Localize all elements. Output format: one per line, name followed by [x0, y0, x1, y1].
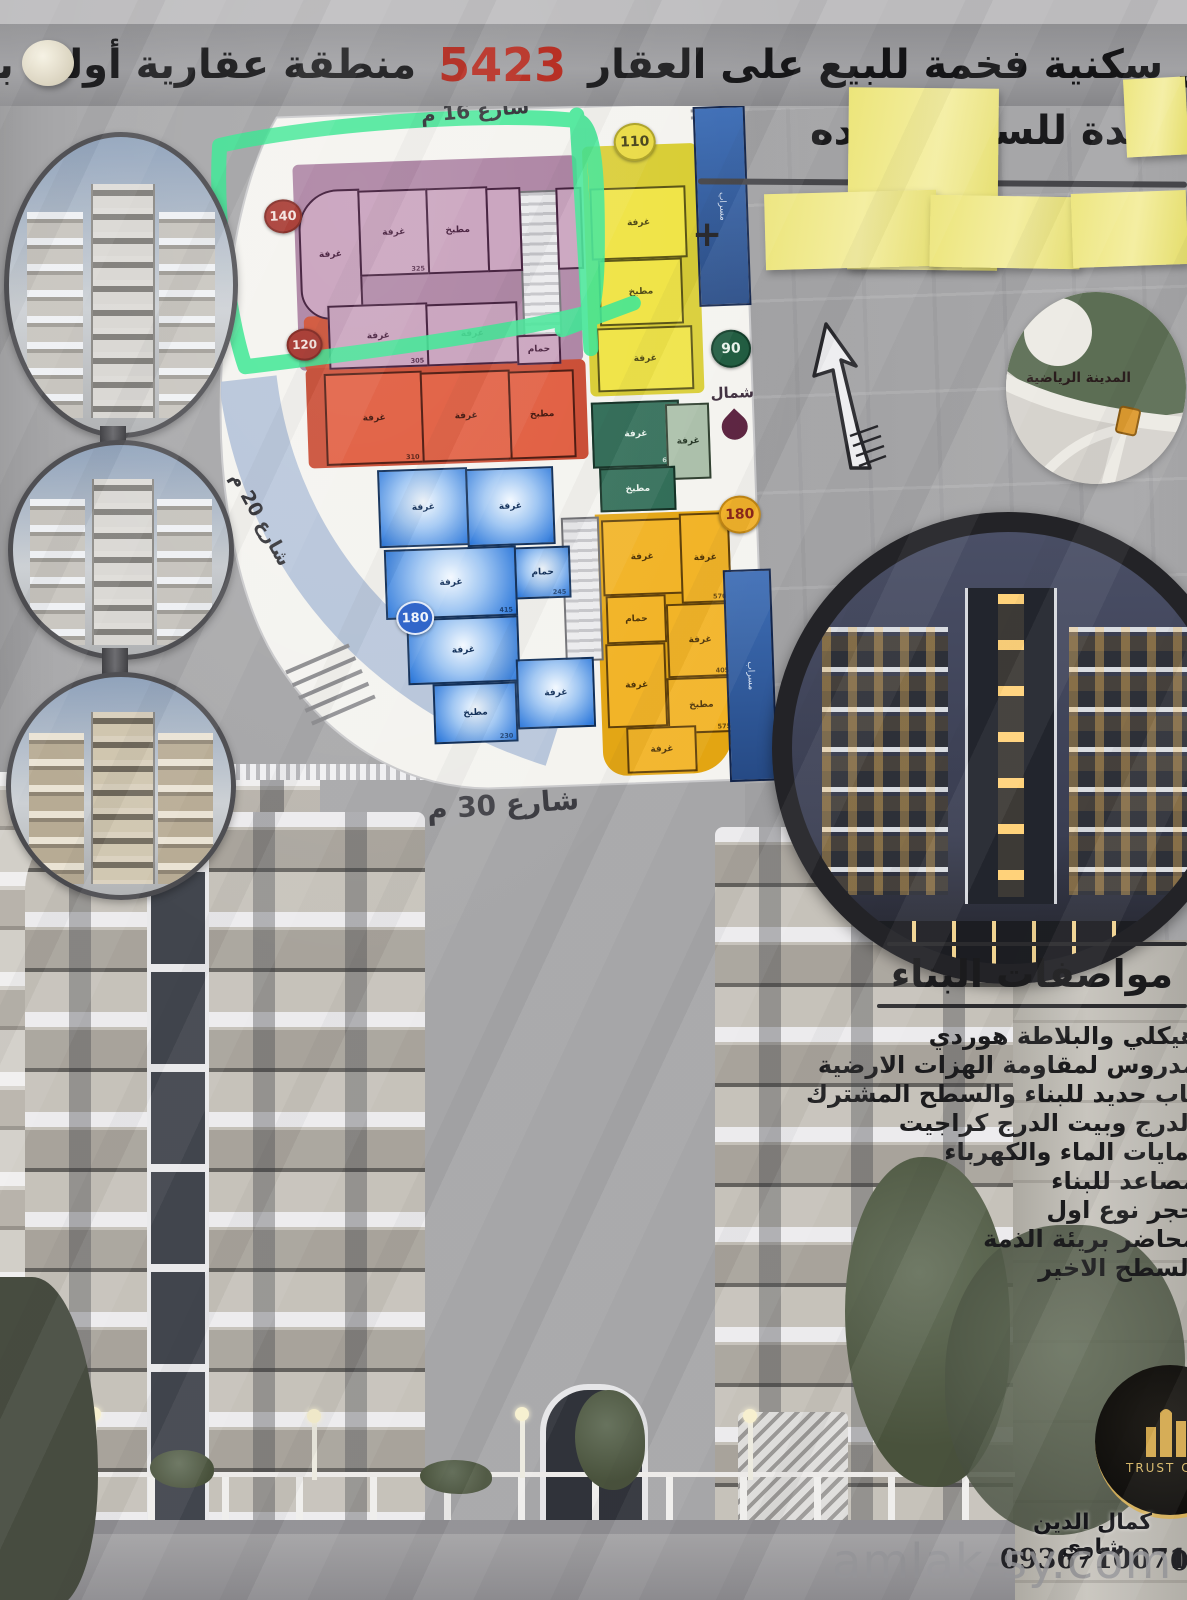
room-label: مطبخ	[689, 700, 714, 711]
building-render-circle-2	[8, 440, 234, 660]
spec-item: محاضر بريئة الذمة	[857, 1225, 1187, 1254]
room-label: مطبخ	[530, 409, 555, 420]
spec-item: امايات الماء والكهرباء	[857, 1138, 1187, 1167]
wall-strip	[0, 0, 1187, 24]
badge-value: 180	[401, 610, 429, 626]
room-label: غرفة	[319, 249, 342, 260]
room-label: غرفة	[634, 353, 657, 364]
room-label: غرفة	[461, 328, 484, 339]
building-render-circle-1	[4, 132, 238, 438]
plan-room: مطبخ230	[433, 681, 519, 744]
room-label: غرفة	[624, 429, 647, 440]
room-label: حمام	[625, 614, 648, 625]
banner-title-right: شقق سكنية فخمة للبيع على العقار	[588, 42, 1187, 88]
room-label: غرفة	[362, 413, 385, 424]
plan-room: مطبخ	[598, 257, 684, 326]
plan-room: غرفة	[465, 466, 556, 547]
poster-photo: شقق سكنية فخمة للبيع على العقار 5423 منط…	[0, 0, 1187, 1600]
room-label: غرفة	[499, 501, 522, 512]
room-area: 245	[553, 588, 567, 596]
night-wing-left	[822, 627, 947, 895]
room-area: 310	[406, 453, 420, 461]
lamp-post	[520, 1420, 525, 1478]
specs-title: مواصفات البناء	[857, 946, 1187, 1004]
spec-item: مصاعد للبناء	[857, 1167, 1187, 1196]
plan-room: غرفة	[605, 642, 668, 728]
specs-panel: مواصفات البناء هيكلي والبلاطة هوردي مدرو…	[857, 942, 1187, 1283]
mini-building-1	[27, 184, 215, 418]
plan-room: غرفة310	[324, 371, 425, 466]
room-label: غرفة	[688, 635, 711, 646]
plan-room: غرفة	[420, 370, 513, 463]
room-label: غرفة	[412, 502, 435, 513]
mini-building-3	[29, 712, 214, 884]
plan-room: مطبخ	[508, 369, 577, 459]
mini-wing-left	[27, 212, 83, 418]
spec-item: باب حديد للبناء والسطح المشترك	[857, 1080, 1187, 1109]
sticky-note	[929, 195, 1080, 270]
plan-room: غرفة	[516, 657, 596, 730]
mini-wing-right	[159, 212, 215, 418]
room-label: غرفة	[544, 688, 567, 699]
pin-blob	[22, 40, 74, 86]
light-shaft-strip: مسراب	[723, 569, 778, 783]
property-number: 5423	[438, 38, 566, 92]
plan-room: غرفة	[596, 325, 694, 392]
badge-value: 140	[269, 208, 297, 224]
plan-room: مطبخ	[425, 186, 490, 274]
plan-room: غرفة	[589, 185, 687, 260]
covered-phone-fragment: +	[692, 214, 722, 255]
lamp-post	[748, 1422, 753, 1480]
room-label: غرفة	[650, 744, 673, 755]
night-wing-right	[1069, 627, 1187, 895]
plan-room: مطبخ	[599, 466, 676, 513]
fence	[0, 1472, 1015, 1523]
spec-item: السطح الاخير	[857, 1254, 1187, 1283]
room-label: حمام	[527, 344, 550, 355]
plan-room: غرفة	[297, 189, 363, 321]
room-label: غرفة	[676, 436, 699, 447]
mini-core	[91, 184, 155, 418]
watermark: amlak-sy.com	[832, 1534, 1172, 1590]
logo-building-icon	[1140, 1405, 1187, 1457]
mini-core	[92, 479, 154, 645]
mini-core	[91, 712, 154, 884]
room-label: مطبخ	[629, 286, 654, 297]
circle-connector	[102, 648, 128, 674]
map-svg	[1006, 292, 1186, 484]
mini-wing-right	[158, 733, 213, 885]
sticky-note	[1123, 76, 1187, 157]
shaft-label: مسراب	[745, 661, 756, 690]
plan-room: غرفة	[377, 467, 470, 548]
lamp-post	[312, 1422, 317, 1480]
room-label: غرفة	[627, 218, 650, 229]
spec-item: الدرج وبيت الدرج كراجيت	[857, 1109, 1187, 1138]
plan-room: غرفة	[425, 301, 519, 366]
location-map: المدينة الرياضية	[1006, 292, 1186, 484]
header-banner: شقق سكنية فخمة للبيع على العقار 5423 منط…	[0, 24, 1187, 106]
bush	[420, 1460, 492, 1494]
plan-room	[485, 187, 523, 272]
mini-wing-left	[29, 733, 84, 885]
room-area: 325	[411, 264, 425, 272]
room-label: غرفة	[382, 227, 405, 238]
agent-phone-partial: 09	[1170, 1546, 1187, 1577]
map-marker	[1116, 406, 1141, 436]
badge-value: 110	[620, 134, 650, 151]
plan-room	[555, 187, 584, 270]
badge-value: 120	[292, 337, 318, 352]
floor-plan: غرفة غرفة325 مطبخ غرفة305 غرفة حمام غرفة…	[202, 90, 792, 844]
plan-room: غرفة305	[327, 302, 429, 369]
plan-room: غرفة325	[357, 188, 430, 276]
mini-wing-left	[30, 499, 84, 645]
spec-item: مدروس لمقاومة الهزات الارضية	[857, 1051, 1187, 1080]
room-area: 230	[500, 732, 514, 740]
compass-arrow	[798, 318, 888, 483]
night-tower-windows	[998, 594, 1024, 897]
plan-room: غرفة	[626, 725, 698, 773]
north-label: شمال	[710, 383, 754, 403]
building-render-circle-3	[6, 672, 236, 900]
badge-value: 90	[721, 340, 741, 357]
room-area: 305	[411, 356, 425, 364]
logo-text: TRUST CON	[1126, 1461, 1187, 1475]
room-label: مطبخ	[445, 225, 470, 236]
bush	[150, 1450, 214, 1488]
room-label: غرفة	[630, 552, 653, 563]
room-label: حمام	[531, 567, 554, 578]
room-label: غرفة	[454, 411, 477, 422]
room-label: غرفة	[452, 645, 475, 656]
room-label: غرفة	[625, 680, 648, 691]
mini-building-2	[30, 479, 211, 645]
plan-room: حمام245	[514, 546, 572, 600]
map-area-label: المدينة الرياضية	[1026, 370, 1131, 386]
plan-room: حمام	[606, 594, 668, 644]
room-label: غرفة	[694, 552, 717, 563]
tree	[575, 1390, 645, 1490]
spec-item: حجر نوع اول	[857, 1196, 1187, 1225]
night-tower	[965, 588, 1057, 903]
room-label: غرفة	[439, 577, 462, 588]
room-label: غرفة	[367, 331, 390, 342]
room-label: مطبخ	[463, 707, 488, 718]
plan-room: حمام	[516, 334, 561, 366]
room-area: 415	[499, 606, 513, 614]
badge-value: 180	[725, 506, 755, 523]
sticky-note	[764, 190, 938, 270]
room-label: مطبخ	[625, 484, 650, 495]
spec-item: هيكلي والبلاطة هوردي	[857, 1022, 1187, 1051]
sticky-note	[1071, 190, 1187, 268]
mini-wing-right	[157, 499, 211, 645]
plan-room: غرفة	[601, 518, 684, 597]
